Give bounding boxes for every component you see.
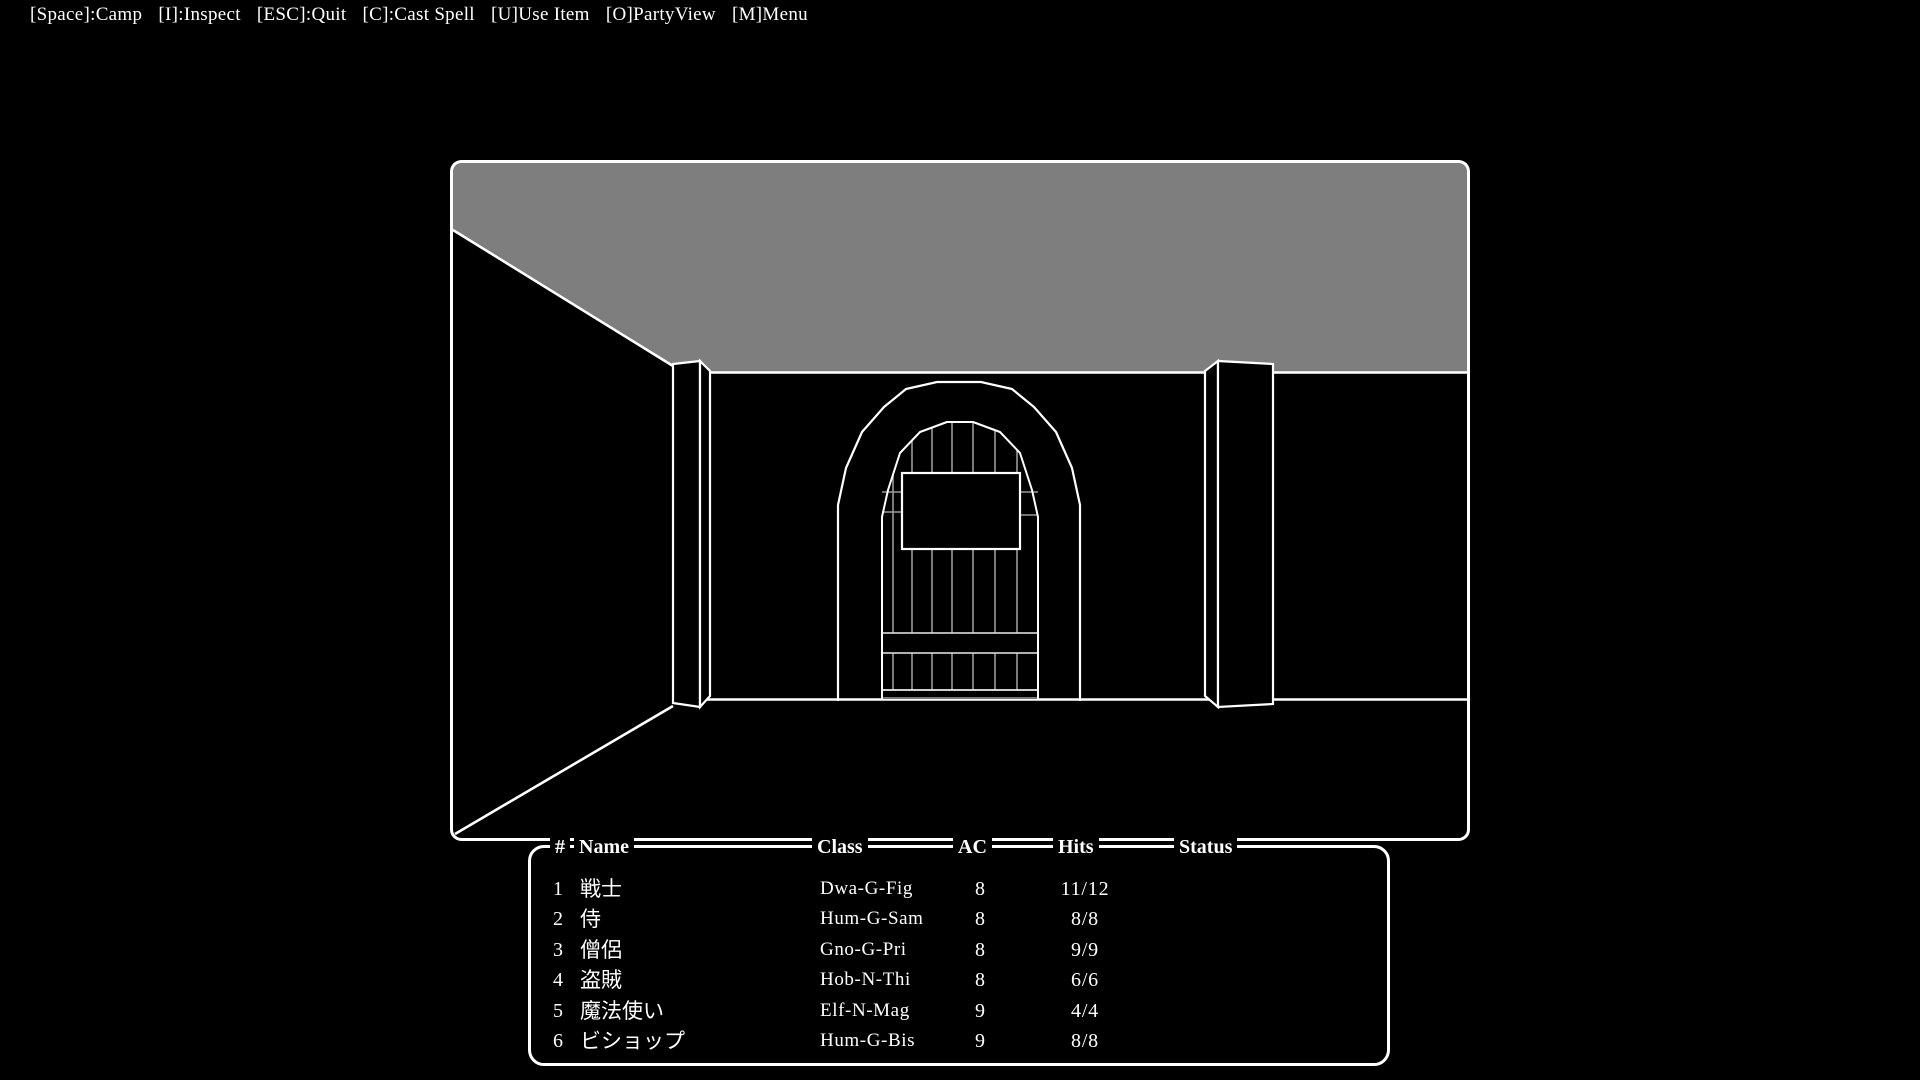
party-member-row[interactable]: 3 僧侶 Gno-G-Pri 8 9/9 <box>531 936 1387 964</box>
member-hits: 9/9 <box>1010 936 1160 964</box>
party-member-row[interactable]: 5 魔法使い Elf-N-Mag 9 4/4 <box>531 997 1387 1025</box>
party-status-panel: # Name Class AC Hits Status 1 戦士 Dwa-G-F… <box>528 845 1390 1066</box>
member-hits: 4/4 <box>1010 997 1160 1025</box>
member-hits: 6/6 <box>1010 966 1160 994</box>
shortcut-use-item: [U]Use Item <box>491 4 590 25</box>
shortcut-quit: [ESC]:Quit <box>257 4 347 25</box>
header-status: Status <box>1174 836 1237 858</box>
right-pillar <box>1205 361 1273 707</box>
member-number: 2 <box>547 905 569 933</box>
member-name: 魔法使い <box>580 997 664 1025</box>
header-ac: AC <box>953 836 992 858</box>
shortcut-inspect: [I]:Inspect <box>158 4 240 25</box>
inner-arch <box>882 422 1038 700</box>
shortcut-menu: [M]Menu <box>732 4 808 25</box>
member-number: 1 <box>547 875 569 903</box>
ceiling <box>453 163 1467 372</box>
member-name: ビショップ <box>580 1027 685 1055</box>
header-number: # <box>550 836 570 858</box>
arched-gate[interactable] <box>838 382 1080 701</box>
shortcut-cast-spell: [C]:Cast Spell <box>362 4 474 25</box>
shortcut-party-view: [O]PartyView <box>606 4 716 25</box>
member-class: Gno-G-Pri <box>820 936 907 964</box>
member-number: 6 <box>547 1027 569 1055</box>
member-hits: 8/8 <box>1010 1027 1160 1055</box>
member-hits: 8/8 <box>1010 905 1160 933</box>
member-class: Dwa-G-Fig <box>820 875 913 903</box>
member-class: Hum-G-Sam <box>820 905 924 933</box>
game-screen: [Space]:Camp [I]:Inspect [ESC]:Quit [C]:… <box>0 0 1920 1080</box>
member-hits: 11/12 <box>1010 875 1160 903</box>
party-member-row[interactable]: 6 ビショップ Hum-G-Bis 9 8/8 <box>531 1027 1387 1055</box>
member-name: 盗賊 <box>580 966 622 994</box>
dungeon-viewport[interactable] <box>450 160 1470 841</box>
party-member-row[interactable]: 4 盗賊 Hob-N-Thi 8 6/6 <box>531 966 1387 994</box>
member-number: 3 <box>547 936 569 964</box>
left-pillar <box>673 361 710 707</box>
door-panel <box>902 473 1020 549</box>
shortcut-bar: [Space]:Camp [I]:Inspect [ESC]:Quit [C]:… <box>30 4 819 30</box>
shortcut-camp: [Space]:Camp <box>30 4 142 25</box>
member-class: Hum-G-Bis <box>820 1027 915 1055</box>
member-number: 4 <box>547 966 569 994</box>
party-member-row[interactable]: 2 侍 Hum-G-Sam 8 8/8 <box>531 905 1387 933</box>
header-class: Class <box>812 836 868 858</box>
member-number: 5 <box>547 997 569 1025</box>
header-hits: Hits <box>1053 836 1099 858</box>
member-class: Elf-N-Mag <box>820 997 910 1025</box>
door-crossbar <box>882 633 1038 653</box>
header-name: Name <box>574 836 634 858</box>
member-name: 僧侶 <box>580 936 622 964</box>
party-member-row[interactable]: 1 戦士 Dwa-G-Fig 8 11/12 <box>531 875 1387 903</box>
member-name: 戦士 <box>580 875 622 903</box>
member-class: Hob-N-Thi <box>820 966 911 994</box>
member-name: 侍 <box>580 905 601 933</box>
